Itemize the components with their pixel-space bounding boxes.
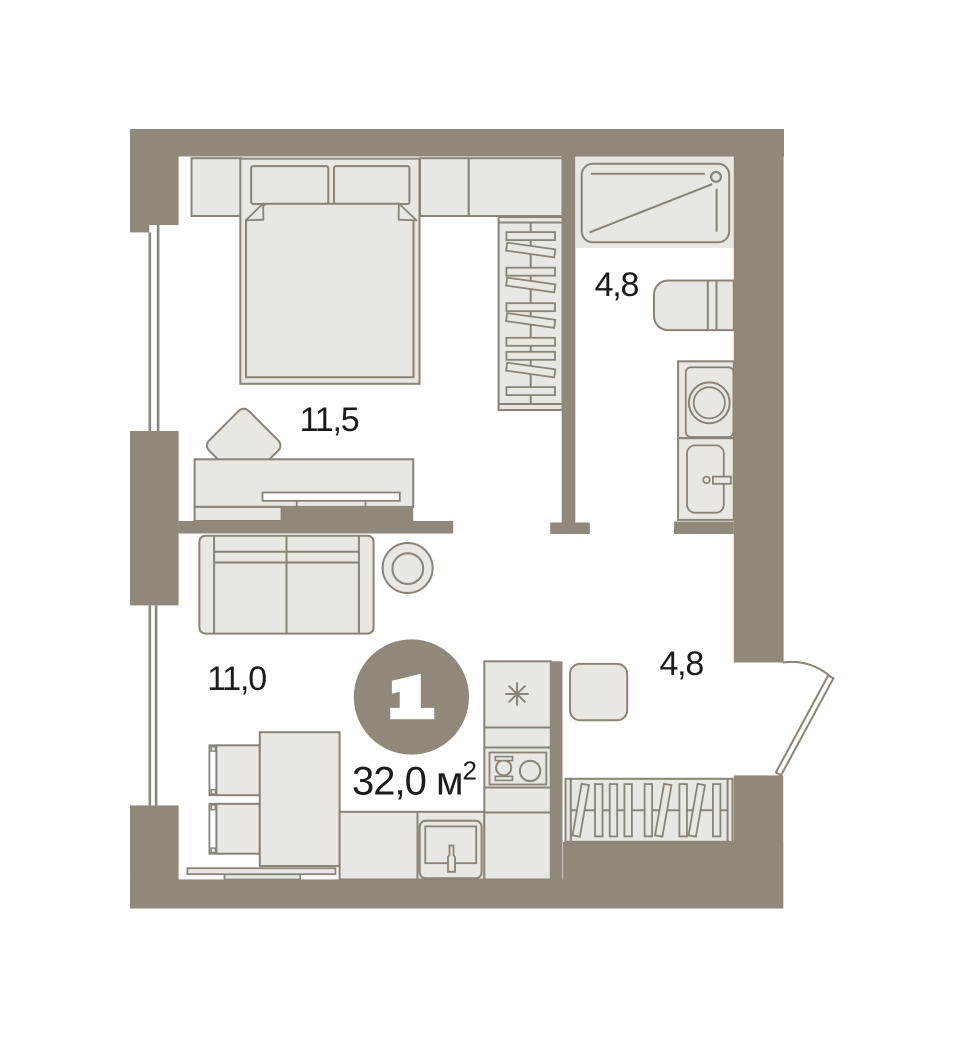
svg-text:32,0 м2: 32,0 м2 xyxy=(352,756,476,804)
svg-text:4,8: 4,8 xyxy=(659,645,703,683)
svg-text:11,0: 11,0 xyxy=(207,660,266,698)
svg-text:11,5: 11,5 xyxy=(300,401,359,439)
svg-text:4,8: 4,8 xyxy=(595,266,639,304)
